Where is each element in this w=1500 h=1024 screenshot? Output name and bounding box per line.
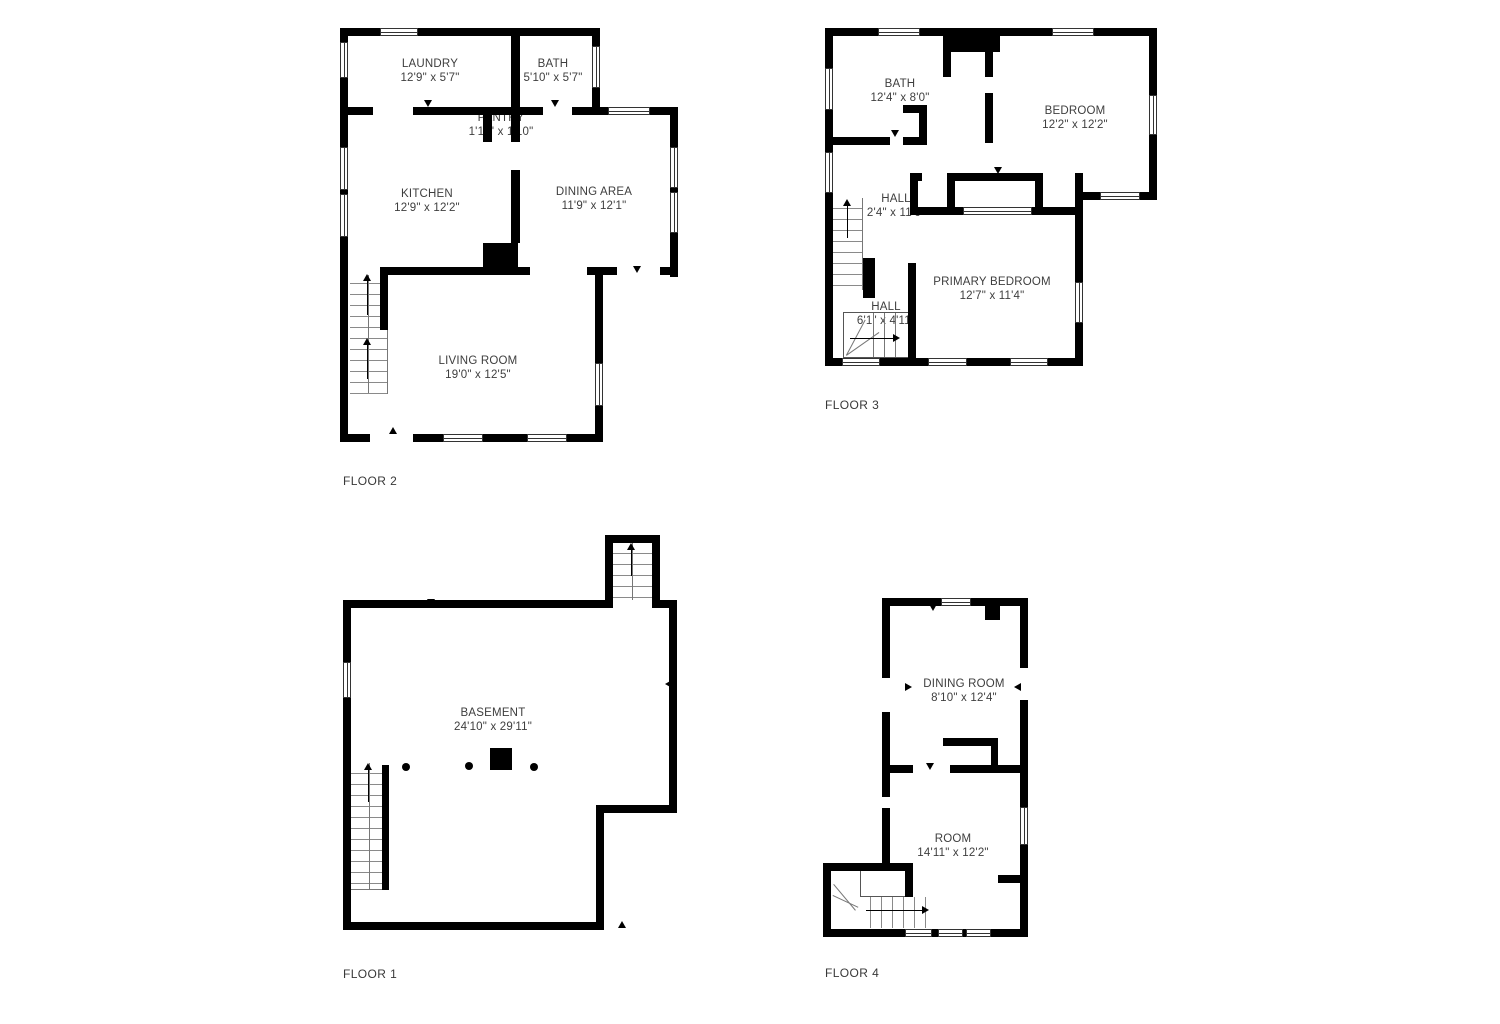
door-opening [373,107,413,115]
room-label-bath-f3: BATH 12'4" x 8'0" [870,77,929,105]
wall-segment [343,922,604,930]
arrow-up-icon [363,274,371,281]
support-column [465,762,473,770]
stair-rail-line [369,763,370,890]
wall-segment [596,805,604,930]
door-opening [890,137,903,145]
wall-segment [596,805,677,813]
room-name: ROOM [917,832,988,846]
window [343,662,351,698]
room-label-bath-f2: BATH 5'10" x 5'7" [523,57,582,85]
wall-segment [652,535,660,608]
window [1149,95,1157,135]
stair-direction-line [367,343,368,379]
room-dims: 12'2" x 12'2" [1042,118,1108,132]
chimney-block [483,243,518,270]
chimney-block [490,748,512,770]
window [608,107,650,115]
window [1010,358,1048,366]
room-dims: 11'9" x 12'1" [556,199,632,213]
room-label-living-room: LIVING ROOM 19'0" x 12'5" [439,354,518,382]
arrow-down-icon [926,763,934,770]
stair-direction-line [631,548,632,576]
chimney-block [985,606,1000,620]
arrow-down-icon [929,604,937,611]
arrow-right-icon [905,683,912,691]
room-dims: 5'10" x 5'7" [523,71,582,85]
room-label-hall-lower: HALL 6'1" x 4'11" [857,300,915,328]
arrow-left-icon [1014,683,1021,691]
arrow-up-icon [364,763,372,770]
room-name: DINING ROOM [923,677,1004,691]
wall-segment [998,875,1020,883]
wall-segment [343,600,351,930]
room-dims: 14'11" x 12'2" [917,846,988,860]
window [825,68,833,110]
wall-segment [511,170,520,243]
wall-segment [903,105,927,113]
window [905,929,932,937]
arrow-down-icon [891,130,899,137]
floor-4-caption: FLOOR 4 [825,966,879,980]
stair-rail-line [632,543,633,607]
arrow-up-icon [627,543,635,550]
room-label-primary-bedroom: PRIMARY BEDROOM 12'7" x 11'4" [933,275,1051,303]
room-label-kitchen: KITCHEN 12'9" x 12'2" [394,187,460,215]
room-name: BASEMENT [454,706,532,720]
arrow-down-icon [994,167,1002,174]
room-dims: 1'11" x 1'10" [469,125,534,139]
wall-segment [908,263,916,366]
window [340,147,348,190]
wall-segment [991,738,998,772]
arrow-left-icon [665,680,672,688]
wall-segment [943,738,998,746]
stair-rail-line [368,275,369,393]
window [595,363,603,406]
arrow-down-icon [424,100,432,107]
wall-segment [380,275,388,330]
room-name: DINING AREA [556,185,632,199]
wall-segment [882,598,890,871]
wall-segment [823,863,913,871]
wall-segment [833,137,927,145]
staircase-treads [860,897,928,928]
room-name: KITCHEN [394,187,460,201]
room-dims: 12'9" x 12'2" [394,201,460,215]
wall-segment [823,863,831,937]
floor-3-caption: FLOOR 3 [825,398,879,412]
arrow-up-icon [618,921,626,928]
window [670,192,678,233]
window [1100,192,1140,200]
room-dims: 19'0" x 12'5" [439,368,518,382]
stair-rail-line [387,330,388,394]
window [527,434,567,442]
door-opening [985,77,993,93]
chimney-block [951,36,1000,52]
wall-segment [863,258,875,298]
room-label-bedroom: BEDROOM 12'2" x 12'2" [1042,104,1108,132]
arrow-down-icon [427,599,435,606]
wall-segment [943,36,951,77]
floor-2-caption: FLOOR 2 [343,474,397,488]
window [1020,807,1028,845]
window [380,28,418,36]
window [592,46,600,88]
wall-segment [595,273,603,442]
room-label-dining-area: DINING AREA 11'9" x 12'1" [556,185,632,213]
window [938,929,963,937]
window [340,42,348,78]
room-name: LAUNDRY [400,57,459,71]
room-dims: 6'1" x 4'11" [857,314,915,328]
window [878,28,920,36]
stair-direction-line [866,910,924,911]
wall-segment [340,28,600,36]
floor-plan-canvas: LAUNDRY 12'9" x 5'7" BATH 5'10" x 5'7" P… [0,0,1500,1024]
arrow-up-icon [363,338,371,345]
room-name: BEDROOM [1042,104,1108,118]
wall-segment [882,765,1028,773]
window [928,358,967,366]
door-opening [613,600,652,608]
room-dims: 12'4" x 8'0" [870,91,929,105]
window [941,598,971,606]
floor-1-caption: FLOOR 1 [343,967,397,981]
door-opening [1020,668,1028,700]
room-label-room: ROOM 14'11" x 12'2" [917,832,988,860]
arrow-up-icon [843,199,851,206]
wall-segment [512,107,678,115]
door-opening [882,797,890,808]
room-label-pantry: PANTRY 1'11" x 1'10" [469,111,534,139]
room-name: BATH [523,57,582,71]
wall-segment [511,36,520,107]
stair-direction-line [847,204,848,238]
wall-segment [919,113,927,137]
wall-segment [910,207,963,215]
window [842,358,880,366]
room-name: BATH [870,77,929,91]
arrow-up-icon [389,427,397,434]
wall-segment [382,765,389,890]
floor-plan-page: { "colors": { "wall": "#000000", "text":… [0,0,1500,1024]
door-opening [370,434,413,442]
wall-segment [1032,207,1083,215]
arrow-down-icon [633,266,641,273]
wall-segment [1075,173,1083,366]
room-name: HALL [857,300,915,314]
room-name: PRIMARY BEDROOM [933,275,1051,289]
room-name: LIVING ROOM [439,354,518,368]
window [966,929,991,937]
wall-segment [380,267,530,275]
stair-direction-line [850,338,894,339]
window [443,434,483,442]
room-dims: 8'10" x 12'4" [923,691,1004,705]
wall-segment [483,115,492,142]
arrow-right-icon [893,334,900,342]
arrow-down-icon [551,100,559,107]
arrow-right-icon [922,906,929,914]
room-dims: 12'7" x 11'4" [933,289,1051,303]
window [825,152,833,193]
support-column [530,763,538,771]
room-label-laundry: LAUNDRY 12'9" x 5'7" [400,57,459,85]
wall-segment [947,173,1043,181]
wall-segment [905,863,913,897]
room-dims: 24'10" x 29'11" [454,720,532,734]
window [670,147,678,188]
stair-direction-line [368,768,369,802]
room-dims: 12'9" x 5'7" [400,71,459,85]
wall-segment [825,28,1157,36]
wall-segment [605,535,613,608]
window [963,207,1032,215]
window [340,194,348,237]
window [1052,28,1094,36]
room-label-dining-room: DINING ROOM 8'10" x 12'4" [923,677,1004,705]
stair-rail-line [884,313,885,357]
room-label-basement: BASEMENT 24'10" x 29'11" [454,706,532,734]
stair-direction-line [367,279,368,315]
door-opening [543,107,572,115]
window [1075,282,1083,323]
wall-segment [669,600,677,812]
staircase-treads [833,198,863,290]
wall-segment [511,115,520,142]
support-column [402,763,410,771]
door-opening [882,678,890,712]
